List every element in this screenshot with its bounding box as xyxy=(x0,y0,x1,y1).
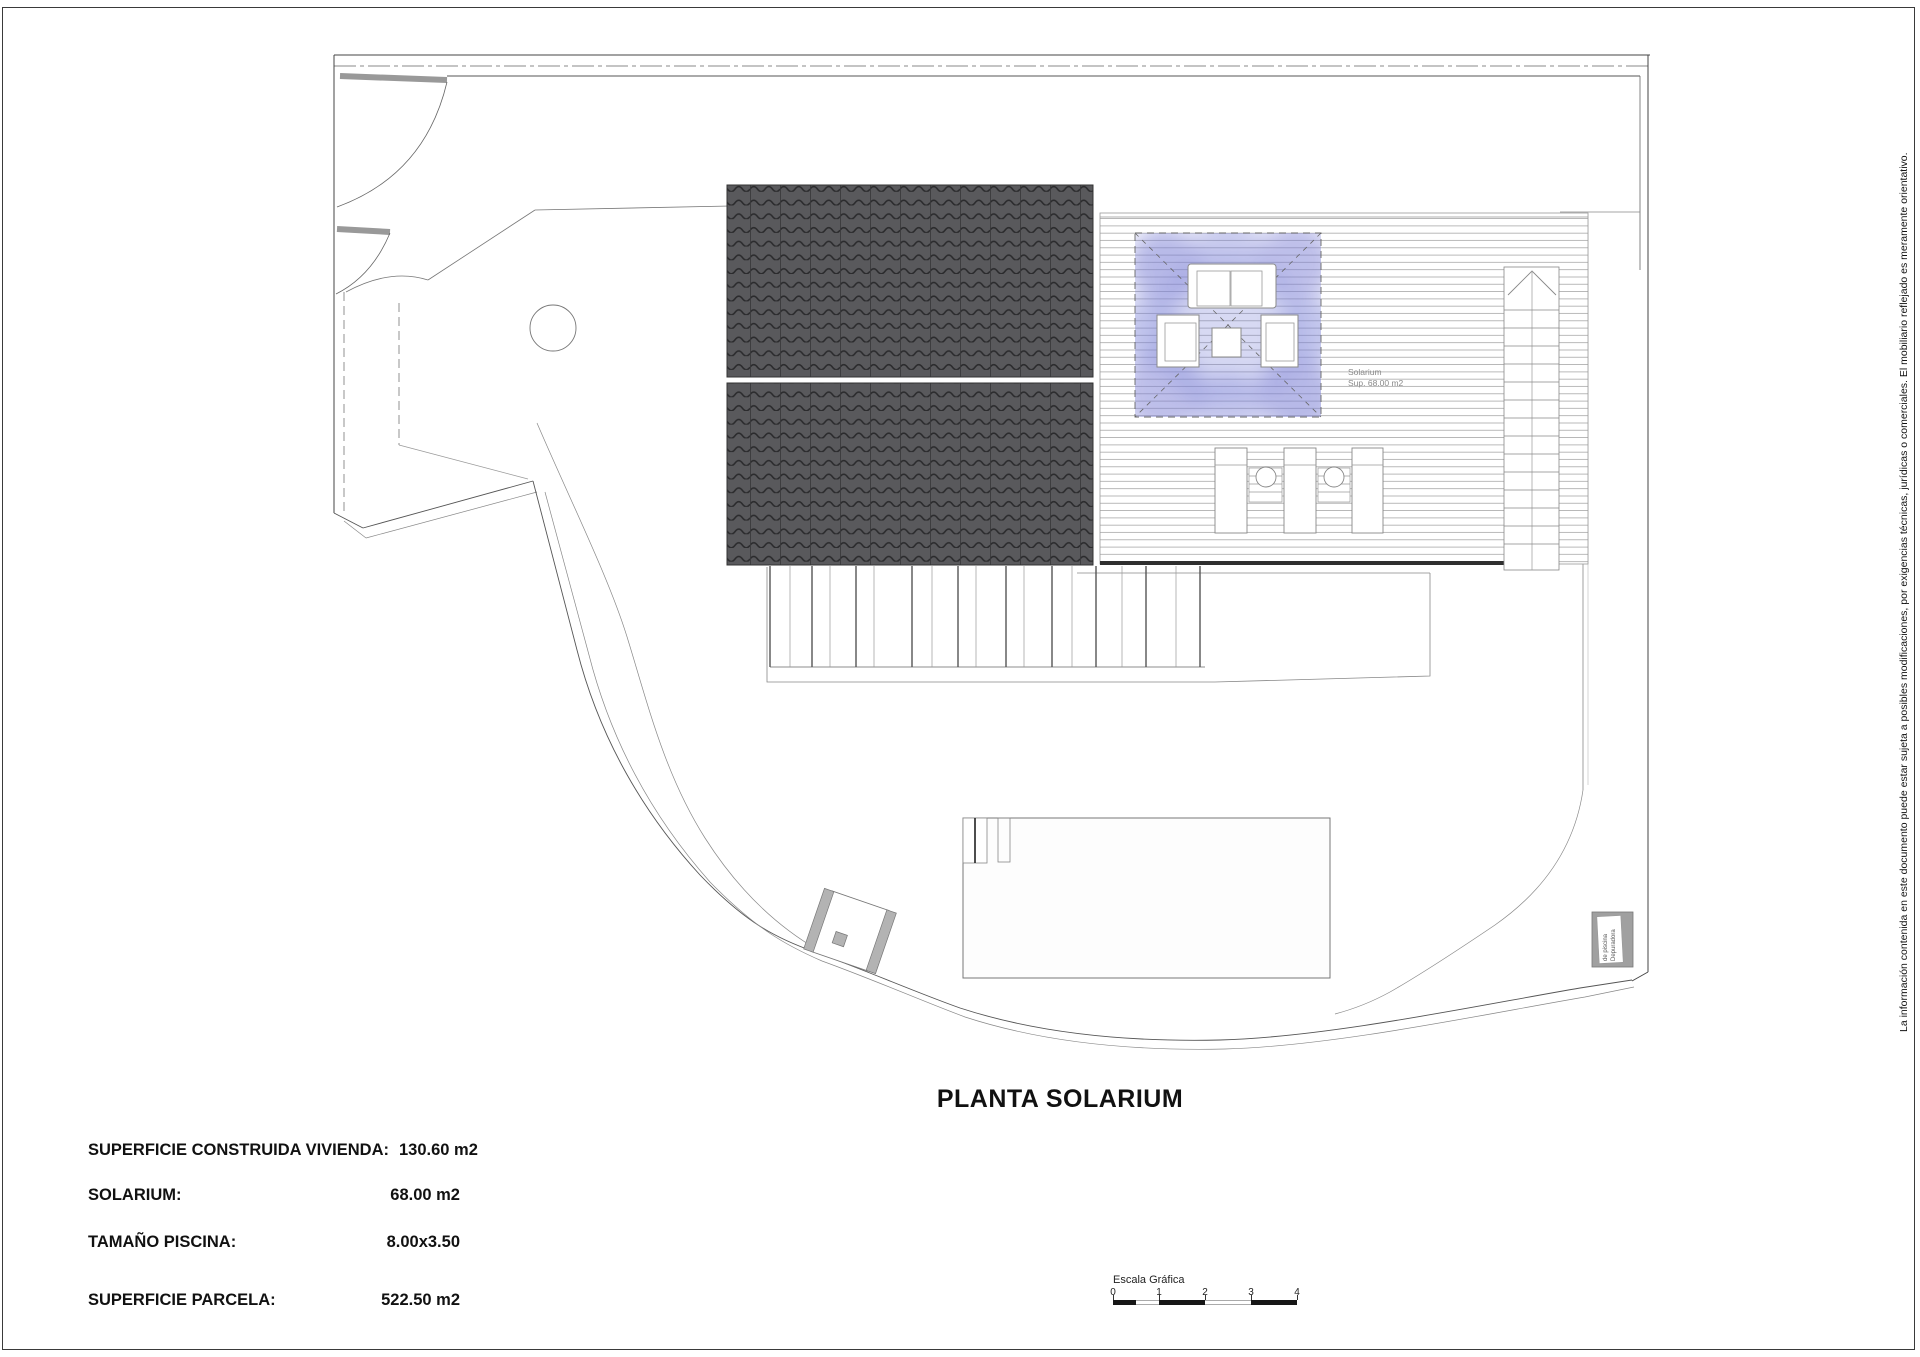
deck-south-edge xyxy=(1100,561,1505,565)
lounger xyxy=(1352,448,1383,533)
scale-ticks: 0 1 2 3 4 xyxy=(1113,1287,1299,1299)
pool-filter-unit: Depuradora de piscina xyxy=(1592,912,1633,967)
sun-loungers xyxy=(1215,448,1383,533)
info-value: 522.50 m2 xyxy=(381,1291,460,1310)
filter-unit-label: Depuradora xyxy=(1611,929,1617,961)
path-pergola xyxy=(804,888,897,973)
swimming-pool xyxy=(963,818,1330,978)
info-value: 8.00x3.50 xyxy=(387,1233,460,1252)
entrance-gates xyxy=(336,76,447,294)
coffee-table xyxy=(1212,328,1241,357)
round-side-table xyxy=(1324,467,1344,487)
roof-stair xyxy=(1504,267,1559,570)
info-value: 68.00 m2 xyxy=(390,1186,460,1205)
lower-floor-outline xyxy=(767,566,1430,682)
info-row-solarium: SOLARIUM: 68.00 m2 xyxy=(88,1186,460,1205)
info-label: SUPERFICIE PARCELA: xyxy=(88,1291,276,1310)
round-side-table xyxy=(1256,467,1276,487)
facade-mullions xyxy=(770,566,1200,667)
filter-unit-label2: de piscina xyxy=(1603,933,1609,961)
graphic-scale: Escala Gráfica 0 1 2 3 4 xyxy=(1113,1274,1299,1305)
drawing-sheet: { "title": "PLANTA SOLARIUM", "disclaime… xyxy=(0,0,1920,1357)
tree-symbol xyxy=(530,305,576,351)
info-label: SOLARIUM: xyxy=(88,1186,182,1205)
roof-lower xyxy=(727,383,1093,565)
info-label: SUPERFICIE CONSTRUIDA VIVIENDA: xyxy=(88,1141,389,1160)
scale-label: Escala Gráfica xyxy=(1113,1274,1299,1286)
scale-bar xyxy=(1113,1300,1299,1305)
solarium-area-value: Sup. 68.00 m2 xyxy=(1348,378,1404,388)
info-row-vivienda: SUPERFICIE CONSTRUIDA VIVIENDA: 130.60 m… xyxy=(88,1141,460,1160)
sofa xyxy=(1188,264,1276,308)
page-title: PLANTA SOLARIUM xyxy=(900,1085,1220,1114)
lounger xyxy=(1215,448,1247,533)
info-row-piscina: TAMAÑO PISCINA: 8.00x3.50 xyxy=(88,1233,460,1252)
info-label: TAMAÑO PISCINA: xyxy=(88,1233,236,1252)
solarium-area-label: Solarium xyxy=(1348,367,1382,377)
roof-upper xyxy=(727,185,1093,377)
info-row-parcela: SUPERFICIE PARCELA: 522.50 m2 xyxy=(88,1291,460,1310)
info-value: 130.60 m2 xyxy=(399,1141,478,1160)
armchair-left xyxy=(1157,315,1199,367)
road-boundary xyxy=(334,55,1650,76)
armchair-right xyxy=(1261,315,1298,367)
lounger xyxy=(1284,448,1316,533)
disclaimer-text: La información contenida en este documen… xyxy=(1898,152,1910,1032)
